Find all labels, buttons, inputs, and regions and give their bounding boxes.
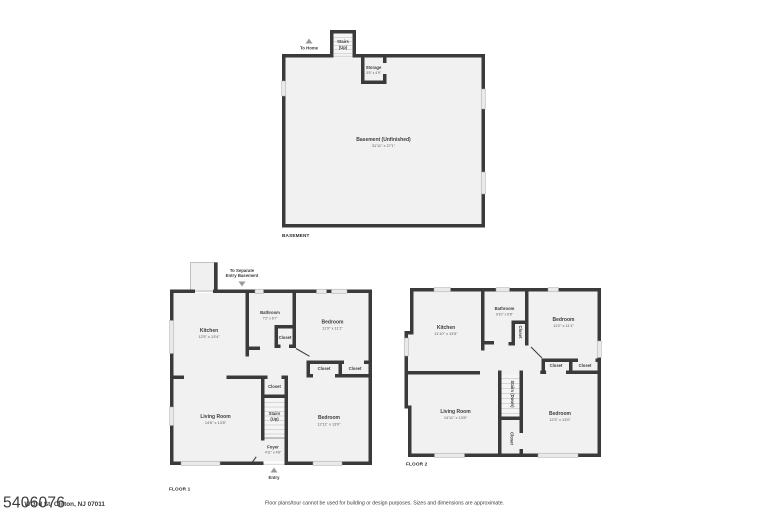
svg-text:Entry Basement: Entry Basement [226, 273, 259, 278]
svg-text:11'9" x 11'1": 11'9" x 11'1" [322, 325, 343, 330]
svg-text:Bathroom: Bathroom [260, 310, 280, 315]
svg-text:FLOOR 2: FLOOR 2 [406, 462, 428, 467]
svg-text:7'2" x 6'7": 7'2" x 6'7" [263, 316, 279, 320]
svg-text:Closet: Closet [279, 335, 292, 340]
svg-text:Closet: Closet [518, 326, 523, 339]
svg-text:Closet: Closet [318, 366, 331, 371]
svg-text:3'6" x 4'9": 3'6" x 4'9" [366, 71, 382, 75]
svg-text:11'2" x 11'1": 11'2" x 11'1" [553, 323, 574, 328]
svg-text:Bathroom: Bathroom [495, 306, 515, 311]
svg-text:14'6" x 13'8": 14'6" x 13'8" [205, 420, 227, 425]
svg-text:Closet: Closet [550, 363, 563, 368]
svg-text:Closet: Closet [579, 363, 592, 368]
svg-text:To Home: To Home [300, 46, 319, 51]
svg-text:Storage: Storage [366, 65, 382, 70]
svg-text:FLOOR 1: FLOOR 1 [169, 487, 191, 492]
svg-text:6'10" x 6'8": 6'10" x 6'8" [496, 312, 514, 316]
svg-text:BASEMENT: BASEMENT [282, 233, 310, 238]
svg-text:Stairs (Down): Stairs (Down) [510, 381, 515, 409]
svg-text:Entry: Entry [269, 475, 281, 480]
svg-text:Floor plans/tour cannot be use: Floor plans/tour cannot be used for buil… [265, 501, 504, 507]
svg-text:11'10" x 13'5": 11'10" x 13'5" [434, 331, 458, 336]
svg-text:Closet: Closet [349, 366, 362, 371]
svg-text:Bedroom: Bedroom [318, 415, 341, 421]
svg-text:31'11" x 27'1": 31'11" x 27'1" [372, 143, 396, 148]
svg-text:12'11" x 13'0": 12'11" x 13'0" [317, 422, 341, 427]
svg-text:12'5" x 13'4": 12'5" x 13'4" [198, 334, 220, 339]
svg-text:Foyer: Foyer [267, 444, 279, 449]
svg-text:5406076: 5406076 [3, 495, 65, 512]
svg-text:14'11" x 13'8": 14'11" x 13'8" [444, 415, 468, 420]
svg-text:4'11" x 4'8": 4'11" x 4'8" [265, 451, 282, 455]
svg-text:Closet: Closet [268, 384, 281, 389]
svg-text:Closet: Closet [509, 432, 514, 445]
svg-text:12'3" x 13'0": 12'3" x 13'0" [549, 417, 571, 422]
svg-text:Stairs: Stairs [337, 39, 349, 44]
svg-text:(Up): (Up) [339, 45, 348, 50]
svg-text:(Up): (Up) [270, 416, 279, 421]
